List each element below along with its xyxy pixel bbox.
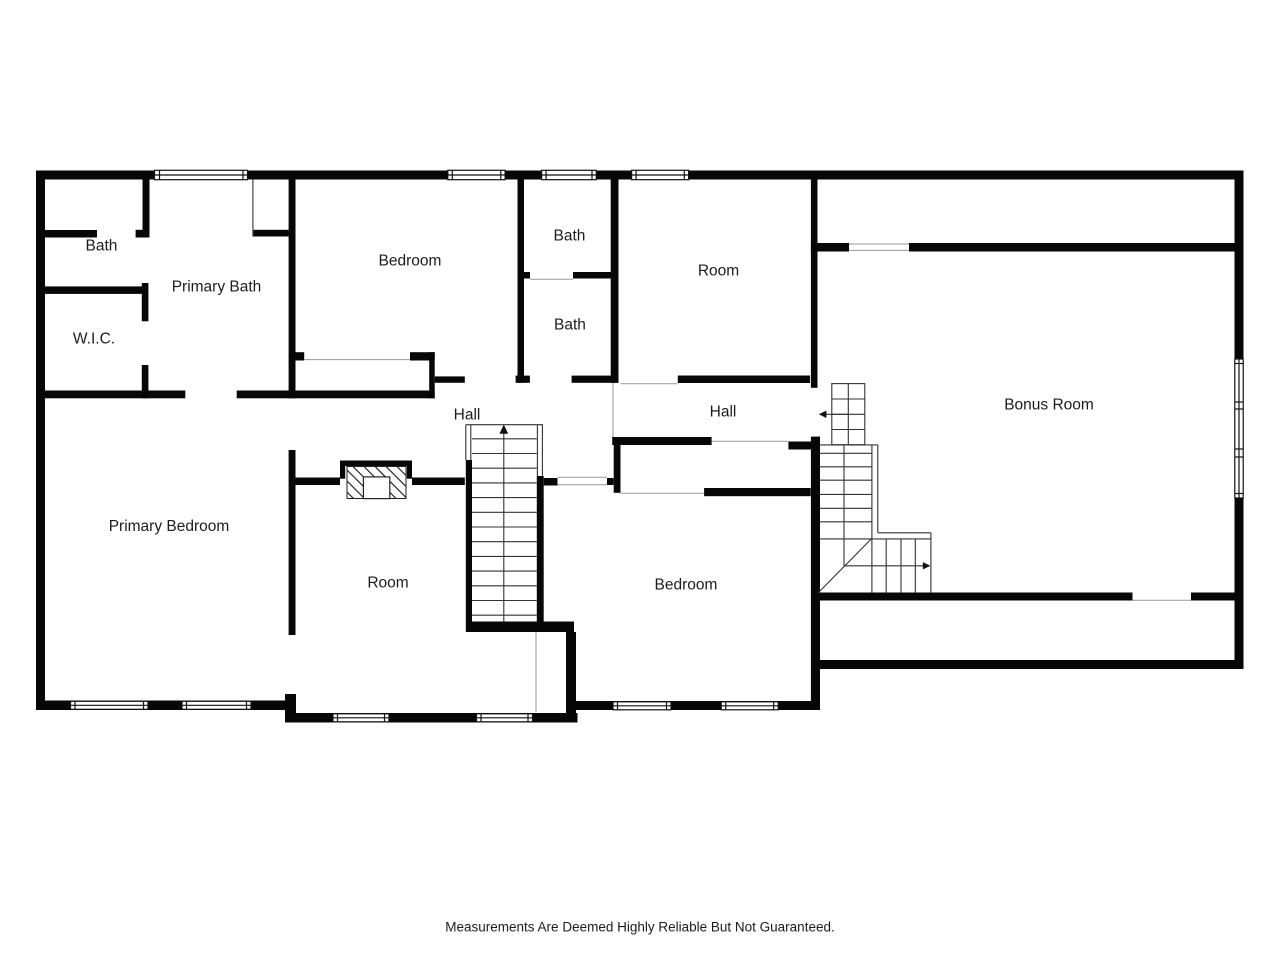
svg-text:Bonus Room: Bonus Room: [1004, 397, 1094, 414]
svg-text:Room: Room: [367, 575, 408, 592]
svg-text:Measurements Are Deemed Highly: Measurements Are Deemed Highly Reliable …: [445, 920, 834, 935]
svg-text:W.I.C.: W.I.C.: [73, 331, 115, 348]
svg-text:Hall: Hall: [710, 404, 737, 421]
svg-text:Bedroom: Bedroom: [379, 253, 442, 270]
svg-text:Primary Bath: Primary Bath: [172, 279, 262, 296]
svg-text:Room: Room: [698, 263, 739, 280]
svg-text:Bedroom: Bedroom: [655, 577, 718, 594]
svg-text:Bath: Bath: [554, 317, 586, 334]
svg-text:Primary Bedroom: Primary Bedroom: [109, 518, 230, 535]
svg-text:Hall: Hall: [454, 407, 481, 424]
svg-text:Bath: Bath: [554, 228, 586, 245]
svg-text:Bath: Bath: [86, 238, 118, 255]
